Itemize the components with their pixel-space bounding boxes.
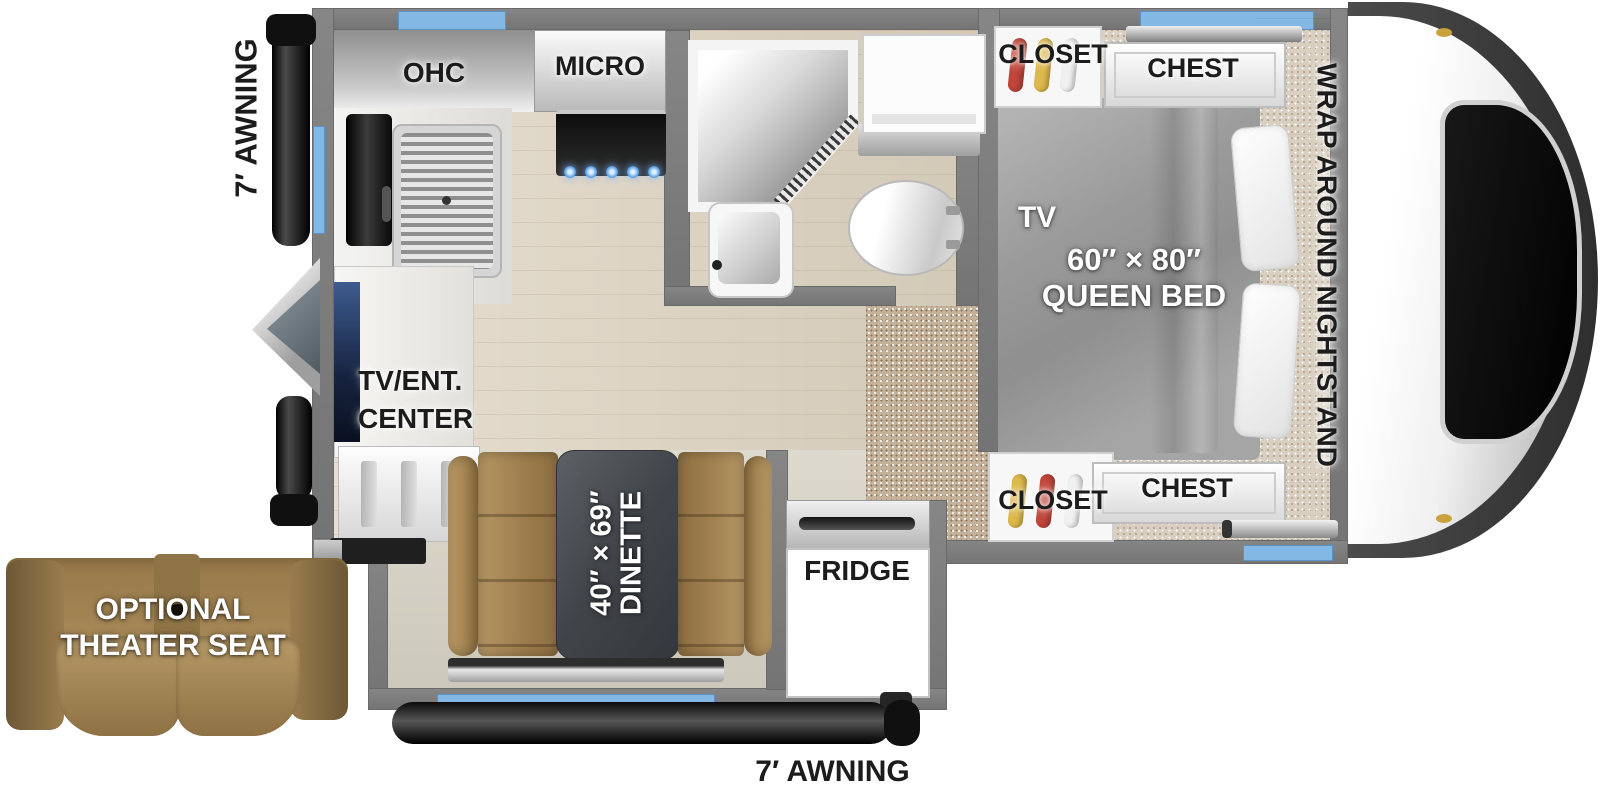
dinette-bench-back (744, 456, 772, 656)
slideout-kick-rail (448, 658, 724, 682)
rail-end-cap (1222, 520, 1232, 538)
toilet-hinge (946, 240, 960, 249)
bed-dim-label: 60″ × 80″ (1014, 244, 1254, 277)
cooktop-burners-icon (560, 166, 664, 186)
marker-light-icon (1436, 28, 1452, 37)
bed-tv-label: TV (1002, 202, 1072, 234)
chest-top-label: CHEST (1104, 54, 1282, 82)
nightstand-label: WRAP AROUND NIGHTSTAND (1312, 63, 1341, 467)
truck-windshield (1440, 100, 1582, 444)
furnace (346, 114, 392, 246)
toilet-hinge (946, 206, 960, 215)
bathroom-sink (708, 202, 794, 298)
counter-handle (799, 517, 915, 530)
awning-roller-bottom (392, 702, 892, 744)
kitchen-sink (392, 124, 502, 278)
ohc-label: OHC (354, 58, 514, 87)
window-bedroom-bottom (1243, 545, 1333, 561)
micro-label: MICRO (522, 52, 678, 80)
dinette-bench-seat (478, 452, 558, 656)
bathroom-wardrobe (862, 34, 986, 134)
dinette-label: 40″ × 69″ DINETTE (587, 453, 648, 653)
window-left-kitchen (313, 126, 325, 234)
door-window (267, 280, 320, 374)
dinette-bench-seat (678, 452, 744, 656)
awning-end-cap (884, 700, 920, 746)
dinette-dim-label: 40″ × 69″ (587, 453, 617, 653)
awning-roller-left-lower (276, 396, 312, 500)
awning-end-cap (270, 494, 318, 526)
toilet (848, 180, 964, 276)
bed-name-label: QUEEN BED (1014, 280, 1254, 313)
awning-roller-left-upper (272, 18, 310, 246)
closet-top-label: CLOSET (983, 40, 1123, 68)
theater-seat-label-line2: THEATER SEAT (40, 630, 306, 662)
tv-ent-label-line2: CENTER (358, 404, 473, 433)
tv-ent-label-line1: TV/ENT. (358, 366, 462, 395)
fridge-label: FRIDGE (787, 556, 927, 585)
tv-screen (334, 282, 360, 442)
dinette-bench-back (448, 456, 478, 656)
fridge-counter (786, 500, 930, 550)
theater-seat-label-line1: OPTIONAL (40, 594, 306, 626)
marker-light-icon (1436, 514, 1452, 523)
truck-cab (1348, 2, 1598, 558)
awning-bottom-label: 7′ AWNING (690, 756, 975, 788)
cabinet-slat (401, 461, 417, 527)
floorplan-canvas: 7′ AWNING 7′ AWNING OHC MICRO TV/ENT. CE… (0, 0, 1600, 795)
chest-bottom-label: CHEST (1092, 474, 1282, 502)
faucet-icon (712, 260, 722, 270)
window-top-kitchen (398, 11, 506, 30)
entry-door-open (252, 258, 320, 396)
chest-top-rail (1126, 26, 1302, 42)
faucet-icon (382, 186, 391, 222)
bed-slide-rail (1222, 520, 1338, 538)
awning-end-cap (266, 14, 316, 46)
wardrobe-shelf (872, 114, 976, 124)
sink-drain-icon (442, 196, 451, 205)
dinette-name-label: DINETTE (617, 453, 647, 653)
cabinet-slat (361, 461, 377, 527)
sink-basin (718, 212, 780, 284)
awning-left-label: 7′ AWNING (231, 38, 264, 198)
